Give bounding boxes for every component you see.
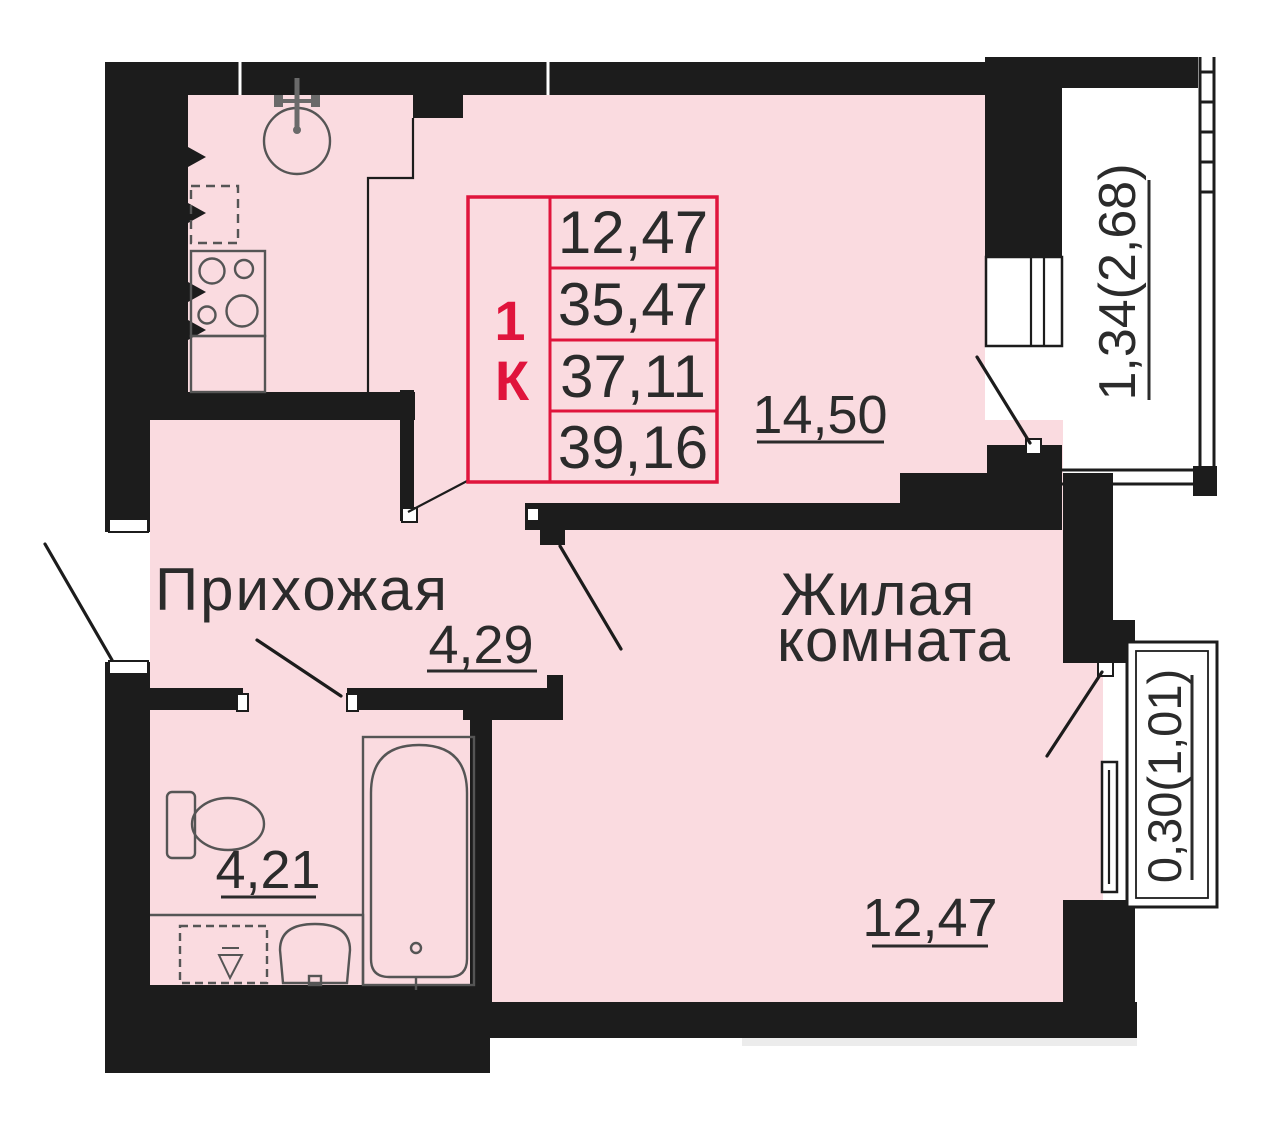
wall-shadow (742, 1038, 1137, 1046)
small-balcony-area: 0,30(1,01) (1138, 669, 1191, 883)
floor-plan-svg: 1 К 12,47 35,47 37,11 39,16 Прихожая 4,2… (0, 0, 1280, 1132)
unit-type-line2: К (495, 349, 530, 412)
info-value-2: 35,47 (558, 271, 708, 338)
bathroom-area: 4,21 (215, 840, 320, 900)
entrance-door (45, 544, 112, 660)
info-value-3: 37,11 (560, 343, 706, 410)
unit-type-line1: 1 (494, 289, 525, 352)
info-value-4: 39,16 (558, 414, 708, 481)
kitchen-living-area: 14,50 (752, 385, 887, 445)
hallway-area: 4,29 (428, 615, 533, 675)
living-room-label-2: комната (777, 607, 1011, 674)
info-value-1: 12,47 (558, 199, 708, 266)
balcony-window (986, 257, 1062, 346)
small-window (1102, 762, 1117, 892)
large-balcony-area: 1,34(2,68) (1089, 163, 1147, 400)
floor-plan: 1 К 12,47 35,47 37,11 39,16 Прихожая 4,2… (0, 0, 1280, 1132)
hallway-label: Прихожая (155, 556, 449, 623)
living-room-area: 12,47 (862, 888, 997, 948)
